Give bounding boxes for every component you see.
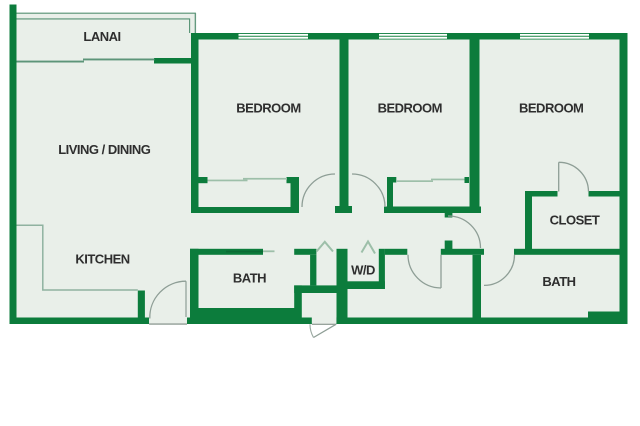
svg-text:KITCHEN: KITCHEN	[75, 252, 129, 267]
svg-text:BATH: BATH	[542, 274, 575, 289]
svg-text:LIVING / DINING: LIVING / DINING	[58, 142, 151, 157]
svg-text:BEDROOM: BEDROOM	[378, 101, 442, 116]
svg-text:W/D: W/D	[351, 263, 375, 278]
svg-text:CLOSET: CLOSET	[550, 213, 600, 228]
svg-text:BEDROOM: BEDROOM	[519, 101, 583, 116]
svg-text:BEDROOM: BEDROOM	[236, 101, 300, 116]
svg-text:LANAI: LANAI	[83, 29, 120, 44]
svg-text:BATH: BATH	[233, 271, 266, 286]
